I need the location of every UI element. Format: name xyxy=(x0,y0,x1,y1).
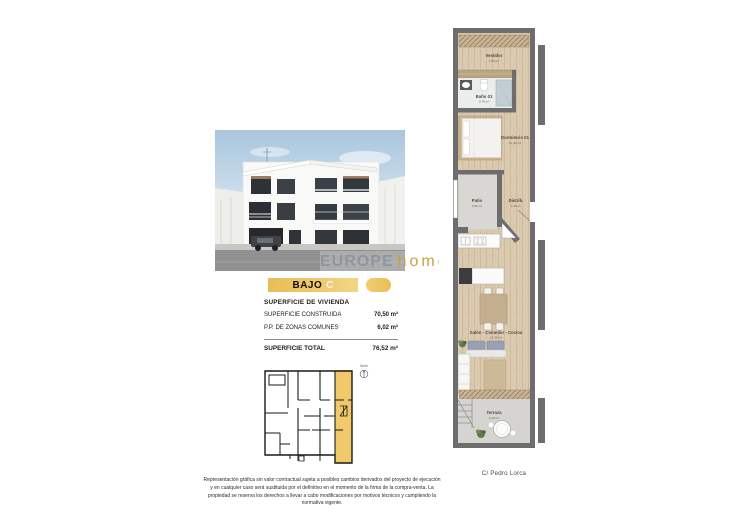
surface-table: SUPERFICIE DE VIVIENDA SUPERFICIE CONSTR… xyxy=(264,297,398,354)
total-value: 76,52 m² xyxy=(372,344,398,354)
table-row: P.P. DE ZONAS COMUNES 6,02 m² xyxy=(264,322,398,335)
room-area-dormitorio: 11,40 m² xyxy=(509,141,521,145)
building-render-photo xyxy=(215,130,405,271)
room-label-patio: Patio xyxy=(472,198,483,203)
room-label-bano: Baño 01 xyxy=(476,94,493,99)
room-area-vestidor: 7,80 m² xyxy=(489,59,500,63)
table-total-row: SUPERFICIE TOTAL 76,52 m² xyxy=(264,339,398,354)
room-area-bano: 3,75 m² xyxy=(479,100,490,104)
pergola-hatch xyxy=(459,390,530,399)
floor-plan: Vestidor 7,80 m² Baño 01 3,75 m² xyxy=(444,22,564,448)
dining-table xyxy=(480,288,507,330)
street-label: C/ Pedro Lorca xyxy=(444,470,564,477)
gold-accent-pill xyxy=(366,278,391,292)
row-value: 70,50 m² xyxy=(374,309,398,322)
room-label-salon: Salón - Comedor - Cocina xyxy=(470,330,523,335)
room-label-vestidor: Vestidor xyxy=(486,53,503,58)
north-compass-icon xyxy=(360,370,368,378)
unit-title-bar: BAJO C xyxy=(268,278,358,292)
kitchen-island xyxy=(459,268,504,284)
row-label: SUPERFICIE CONSTRUIDA xyxy=(264,309,341,322)
legal-disclaimer: Representación gráfica sin valor contrac… xyxy=(202,477,442,508)
room-label-terraza: Terraza xyxy=(487,410,503,415)
table-row: SUPERFICIE CONSTRUIDA 70,50 m² xyxy=(264,309,398,322)
shelf-unit xyxy=(458,354,470,392)
kitchen-counter xyxy=(458,234,500,248)
row-label: P.P. DE ZONAS COMUNES xyxy=(264,322,338,335)
room-label-distrib: Distrib. xyxy=(509,198,524,203)
unit-letter: C xyxy=(326,280,333,291)
north-label: Norte xyxy=(360,364,368,368)
highlighted-unit xyxy=(335,370,352,463)
room-label-dormitorio: Dormitorio 01 xyxy=(501,135,530,140)
site-plan-drawing: Norte xyxy=(260,358,385,468)
building-render-illustration xyxy=(215,130,405,271)
unit-name: BAJO xyxy=(292,280,322,291)
watermark-suffix: home xyxy=(398,253,439,271)
room-area-terraza: 4,10 m² xyxy=(489,416,500,420)
site-key-plan: Norte xyxy=(260,358,385,468)
floor-plan-drawing: Vestidor 7,80 m² Baño 01 3,75 m² xyxy=(444,22,564,448)
row-value: 6,02 m² xyxy=(377,322,398,335)
bathroom-zone xyxy=(458,78,514,108)
room-area-patio: 5,90 m² xyxy=(472,204,483,208)
surface-table-header: SUPERFICIE DE VIVIENDA xyxy=(264,297,398,309)
terrace-floor xyxy=(458,399,530,443)
europe-home-watermark: EUROPE home xyxy=(320,251,439,273)
watermark-brand: EUROPE xyxy=(320,253,394,271)
rug xyxy=(484,360,506,390)
wardrobe-hatch xyxy=(459,35,529,47)
total-label: SUPERFICIE TOTAL xyxy=(264,344,325,354)
room-area-distrib: 4,30 m² xyxy=(511,204,522,208)
room-area-salon: 27,30 m² xyxy=(490,336,502,340)
bed xyxy=(458,116,502,160)
brochure-page: EUROPE home BAJO C SUPERFICIE DE VIVIEND… xyxy=(0,0,756,528)
